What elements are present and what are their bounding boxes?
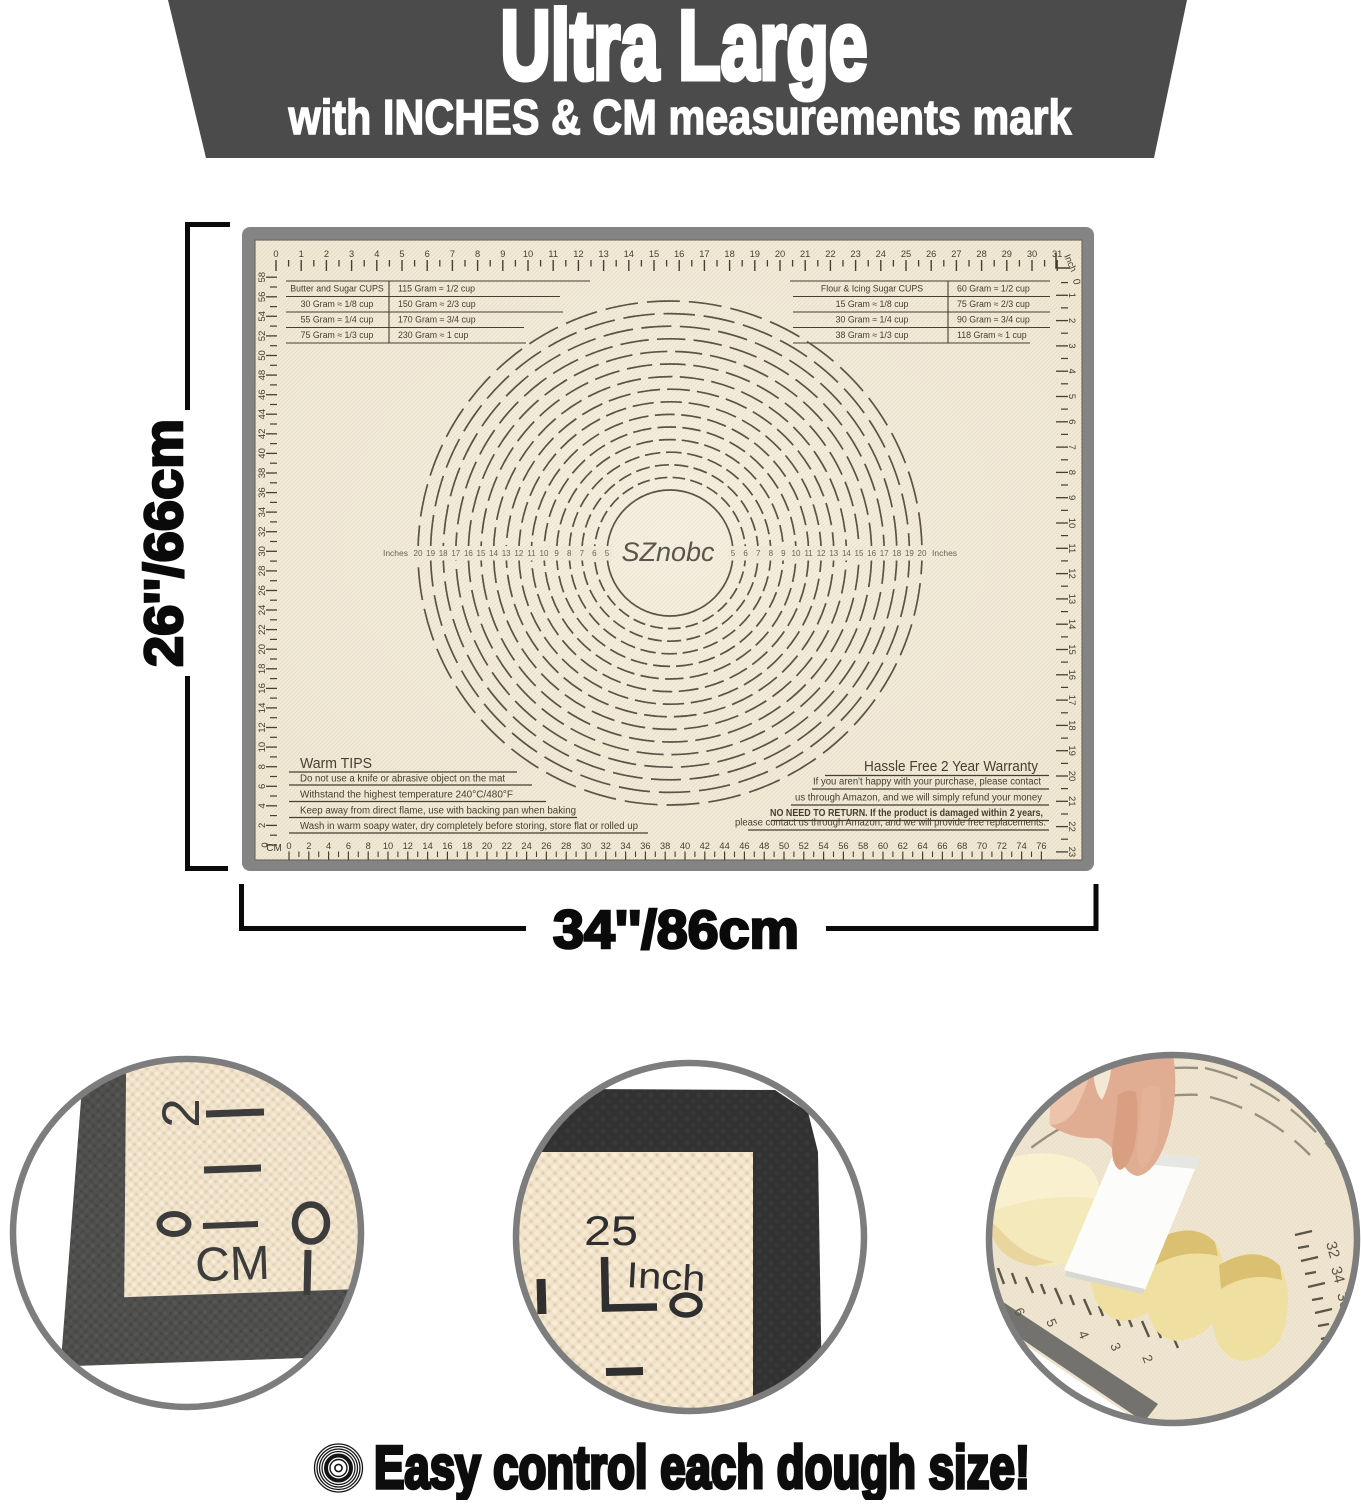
svg-text:8: 8: [257, 764, 268, 769]
svg-text:2: 2: [306, 841, 311, 851]
svg-text:90 Gram ≈ 3/4 cup: 90 Gram ≈ 3/4 cup: [957, 315, 1030, 325]
svg-text:16: 16: [442, 841, 452, 851]
svg-text:6: 6: [1066, 419, 1077, 424]
svg-text:38: 38: [257, 468, 268, 479]
svg-text:58: 58: [257, 272, 268, 283]
svg-text:17: 17: [880, 549, 889, 558]
svg-text:18: 18: [1066, 720, 1077, 731]
svg-text:Flour & Icing Sugar CUPS: Flour & Icing Sugar CUPS: [821, 284, 923, 294]
svg-text:29: 29: [1002, 249, 1012, 259]
svg-text:12: 12: [817, 549, 826, 558]
svg-text:8: 8: [769, 549, 774, 558]
svg-text:20: 20: [1066, 771, 1077, 782]
svg-text:44: 44: [719, 841, 729, 851]
svg-text:28: 28: [976, 249, 986, 259]
svg-text:Butter and Sugar CUPS: Butter and Sugar CUPS: [290, 284, 384, 294]
svg-text:48: 48: [257, 370, 268, 381]
svg-text:CM: CM: [194, 1237, 270, 1293]
svg-text:76: 76: [1036, 841, 1046, 851]
svg-text:60: 60: [878, 841, 888, 851]
svg-text:3: 3: [349, 249, 354, 259]
svg-text:55 Gram ≈ 1/4 cup: 55 Gram ≈ 1/4 cup: [301, 315, 374, 325]
svg-text:8: 8: [366, 841, 371, 851]
svg-text:2: 2: [257, 823, 268, 828]
svg-text:9: 9: [781, 549, 786, 558]
svg-text:30: 30: [257, 546, 268, 557]
svg-text:15: 15: [855, 549, 864, 558]
svg-text:5: 5: [1066, 394, 1077, 399]
svg-text:4: 4: [326, 841, 331, 851]
svg-text:34: 34: [257, 507, 268, 518]
svg-text:11: 11: [527, 549, 536, 558]
svg-text:3: 3: [1066, 343, 1077, 348]
svg-text:32: 32: [257, 526, 268, 537]
svg-text:7: 7: [756, 549, 761, 558]
svg-text:34: 34: [620, 841, 630, 851]
svg-text:9: 9: [500, 249, 505, 259]
svg-text:15: 15: [477, 549, 486, 558]
svg-text:15 Gram ≈ 1/8 cup: 15 Gram ≈ 1/8 cup: [836, 299, 909, 309]
svg-text:SZnobc: SZnobc: [621, 537, 715, 567]
svg-text:54: 54: [257, 311, 268, 322]
svg-text:26: 26: [926, 249, 936, 259]
svg-text:4: 4: [257, 803, 268, 808]
svg-text:26: 26: [257, 585, 268, 596]
svg-text:38: 38: [660, 841, 670, 851]
svg-text:If you aren't happy with your: If you aren't happy with your purchase, …: [813, 777, 1041, 788]
svg-text:46: 46: [257, 389, 268, 400]
svg-text:11: 11: [1066, 543, 1077, 553]
svg-text:18: 18: [439, 549, 448, 558]
svg-text:16: 16: [867, 549, 876, 558]
svg-text:19: 19: [905, 549, 914, 558]
svg-text:14: 14: [257, 703, 268, 714]
svg-text:9: 9: [1066, 495, 1077, 500]
svg-text:38 Gram ≈ 1/3 cup: 38 Gram ≈ 1/3 cup: [836, 330, 909, 340]
svg-text:118 Gram ≈ 1 cup: 118 Gram ≈ 1 cup: [957, 330, 1027, 340]
svg-text:6: 6: [743, 549, 748, 558]
svg-text:2: 2: [152, 1098, 211, 1127]
svg-text:170 Gram ≈ 3/4 cup: 170 Gram ≈ 3/4 cup: [398, 315, 476, 325]
svg-text:18: 18: [462, 841, 472, 851]
svg-text:32: 32: [601, 841, 611, 851]
svg-text:58: 58: [858, 841, 868, 851]
svg-text:4: 4: [1066, 369, 1077, 374]
svg-text:8: 8: [567, 549, 572, 558]
svg-text:14: 14: [842, 549, 851, 558]
svg-text:42: 42: [257, 429, 268, 440]
svg-text:46: 46: [739, 841, 749, 851]
svg-text:28: 28: [257, 566, 268, 577]
svg-text:50: 50: [257, 350, 268, 361]
svg-text:30: 30: [581, 841, 591, 851]
svg-text:21: 21: [800, 249, 810, 259]
svg-text:14: 14: [1066, 619, 1077, 630]
svg-text:Keep away from direct flame, u: Keep away from direct flame, use with ba…: [300, 806, 576, 817]
svg-text:16: 16: [674, 249, 684, 259]
svg-text:14: 14: [422, 841, 432, 851]
svg-text:68: 68: [957, 841, 967, 851]
svg-text:25: 25: [584, 1207, 638, 1254]
svg-text:10: 10: [1066, 518, 1077, 529]
svg-text:1: 1: [299, 249, 304, 259]
svg-text:16: 16: [1066, 670, 1077, 681]
svg-text:Do not use a knife or abrasive: Do not use a knife or abrasive object on…: [300, 774, 505, 785]
svg-text:62: 62: [898, 841, 908, 851]
svg-text:Inches: Inches: [932, 548, 957, 558]
svg-text:36: 36: [640, 841, 650, 851]
svg-text:5: 5: [731, 549, 736, 558]
svg-text:6: 6: [346, 841, 351, 851]
svg-text:30 Gram ≈ 1/8 cup: 30 Gram ≈ 1/8 cup: [301, 299, 374, 309]
svg-text:12: 12: [257, 722, 268, 733]
svg-text:44: 44: [257, 409, 268, 420]
svg-text:Hassle Free 2 Year Warranty: Hassle Free 2 Year Warranty: [864, 759, 1039, 775]
svg-text:16: 16: [464, 549, 473, 558]
svg-text:with INCHES & CM measurements: with INCHES & CM measurements mark: [288, 91, 1072, 145]
svg-text:12: 12: [514, 549, 523, 558]
svg-text:15: 15: [1066, 644, 1077, 655]
svg-text:115 Gram ≈ 1/2 cup: 115 Gram ≈ 1/2 cup: [398, 284, 475, 294]
svg-text:230 Gram ≈ 1 cup: 230 Gram ≈ 1 cup: [398, 330, 468, 340]
svg-text:18: 18: [892, 549, 901, 558]
svg-text:10: 10: [523, 249, 533, 259]
svg-text:20: 20: [918, 549, 927, 558]
svg-text:20: 20: [414, 549, 423, 558]
svg-text:24: 24: [257, 605, 268, 616]
svg-text:1: 1: [1066, 293, 1077, 298]
svg-text:18: 18: [257, 664, 268, 675]
svg-text:20: 20: [775, 249, 785, 259]
svg-text:54: 54: [818, 841, 828, 851]
svg-text:12: 12: [403, 841, 413, 851]
svg-text:8: 8: [1066, 470, 1077, 475]
svg-text:48: 48: [759, 841, 769, 851]
svg-text:22: 22: [502, 841, 512, 851]
svg-text:36: 36: [257, 487, 268, 498]
svg-text:22: 22: [825, 249, 835, 259]
svg-text:2: 2: [1066, 318, 1077, 323]
svg-text:6: 6: [425, 249, 430, 259]
svg-text:5: 5: [605, 549, 610, 558]
svg-text:19: 19: [426, 549, 435, 558]
svg-text:4: 4: [374, 249, 379, 259]
svg-text:26''/66cm: 26''/66cm: [134, 419, 194, 667]
svg-text:72: 72: [997, 841, 1007, 851]
svg-text:42: 42: [700, 841, 710, 851]
svg-text:11: 11: [548, 249, 558, 259]
svg-text:us through Amazon, and we wil: us through Amazon, and we will simply re…: [795, 793, 1042, 804]
svg-text:7: 7: [1066, 444, 1077, 449]
svg-text:10: 10: [792, 549, 801, 558]
svg-text:26: 26: [541, 841, 551, 851]
svg-text:20: 20: [482, 841, 492, 851]
svg-text:20: 20: [257, 644, 268, 655]
svg-text:15: 15: [649, 249, 659, 259]
svg-text:52: 52: [257, 331, 268, 342]
svg-text:7: 7: [450, 249, 455, 259]
svg-text:7: 7: [580, 549, 585, 558]
svg-text:21: 21: [1066, 796, 1077, 807]
svg-text:64: 64: [917, 841, 927, 851]
svg-text:70: 70: [977, 841, 987, 851]
svg-text:24: 24: [521, 841, 531, 851]
svg-text:14: 14: [624, 249, 634, 259]
svg-text:40: 40: [257, 448, 268, 459]
svg-text:150 Gram ≈ 2/3 cup: 150 Gram ≈ 2/3 cup: [398, 299, 476, 309]
svg-text:9: 9: [554, 549, 559, 558]
svg-text:23: 23: [1066, 847, 1077, 858]
svg-text:52: 52: [799, 841, 809, 851]
svg-text:40: 40: [680, 841, 690, 851]
svg-text:5: 5: [399, 249, 404, 259]
svg-text:28: 28: [561, 841, 571, 851]
svg-text:Inch: Inch: [626, 1254, 707, 1299]
svg-text:22: 22: [1066, 821, 1077, 832]
svg-text:18: 18: [724, 249, 734, 259]
svg-text:6: 6: [592, 549, 597, 558]
svg-text:13: 13: [598, 249, 608, 259]
svg-text:12: 12: [573, 249, 583, 259]
svg-text:50: 50: [779, 841, 789, 851]
svg-text:24: 24: [876, 249, 886, 259]
svg-text:0: 0: [286, 841, 291, 851]
svg-text:Easy control each dough size!: Easy control each dough size!: [374, 1434, 1030, 1500]
svg-text:Ultra Large: Ultra Large: [501, 0, 868, 100]
svg-text:30: 30: [1027, 249, 1037, 259]
svg-text:34''/86cm: 34''/86cm: [553, 900, 799, 960]
svg-text:16: 16: [257, 683, 268, 694]
svg-text:75 Gram ≈ 1/3 cup: 75 Gram ≈ 1/3 cup: [301, 330, 374, 340]
svg-text:22: 22: [257, 624, 268, 635]
svg-text:2: 2: [324, 249, 329, 259]
svg-text:56: 56: [257, 292, 268, 303]
svg-text:14: 14: [489, 549, 498, 558]
svg-text:Wash in warm soapy water, dry: Wash in warm soapy water, dry completely…: [300, 821, 638, 832]
svg-text:60 Gram ≈ 1/2 cup: 60 Gram ≈ 1/2 cup: [957, 284, 1030, 294]
svg-text:Inches: Inches: [383, 548, 408, 558]
svg-text:10: 10: [257, 742, 268, 753]
svg-text:25: 25: [901, 249, 911, 259]
svg-text:19: 19: [750, 249, 760, 259]
svg-text:Warm TIPS: Warm TIPS: [300, 756, 372, 772]
svg-text:56: 56: [838, 841, 848, 851]
svg-text:8: 8: [475, 249, 480, 259]
svg-text:30 Gram ≈ 1/4 cup: 30 Gram ≈ 1/4 cup: [836, 315, 909, 325]
svg-text:27: 27: [951, 249, 961, 259]
svg-text:6: 6: [257, 784, 268, 789]
svg-text:13: 13: [502, 549, 511, 558]
svg-text:12: 12: [1066, 568, 1077, 579]
svg-text:10: 10: [540, 549, 549, 558]
svg-text:17: 17: [451, 549, 460, 558]
svg-text:13: 13: [829, 549, 838, 558]
svg-text:13: 13: [1066, 594, 1077, 605]
svg-text:11: 11: [804, 549, 813, 558]
svg-text:CM: CM: [266, 843, 282, 854]
svg-text:31: 31: [1052, 249, 1062, 259]
svg-text:Withstand the highest tempe: Withstand the highest temperature 240°C/…: [300, 790, 513, 801]
svg-text:23: 23: [850, 249, 860, 259]
svg-text:10: 10: [383, 841, 393, 851]
svg-text:74: 74: [1016, 841, 1026, 851]
svg-text:17: 17: [699, 249, 709, 259]
svg-text:19: 19: [1066, 745, 1077, 756]
svg-text:0: 0: [273, 249, 278, 259]
svg-text:66: 66: [937, 841, 947, 851]
svg-text:17: 17: [1066, 695, 1077, 706]
svg-text:please contact us through Amaz: please contact us through Amazon, and we…: [735, 818, 1046, 829]
svg-text:75 Gram ≈ 2/3 cup: 75 Gram ≈ 2/3 cup: [957, 299, 1030, 309]
